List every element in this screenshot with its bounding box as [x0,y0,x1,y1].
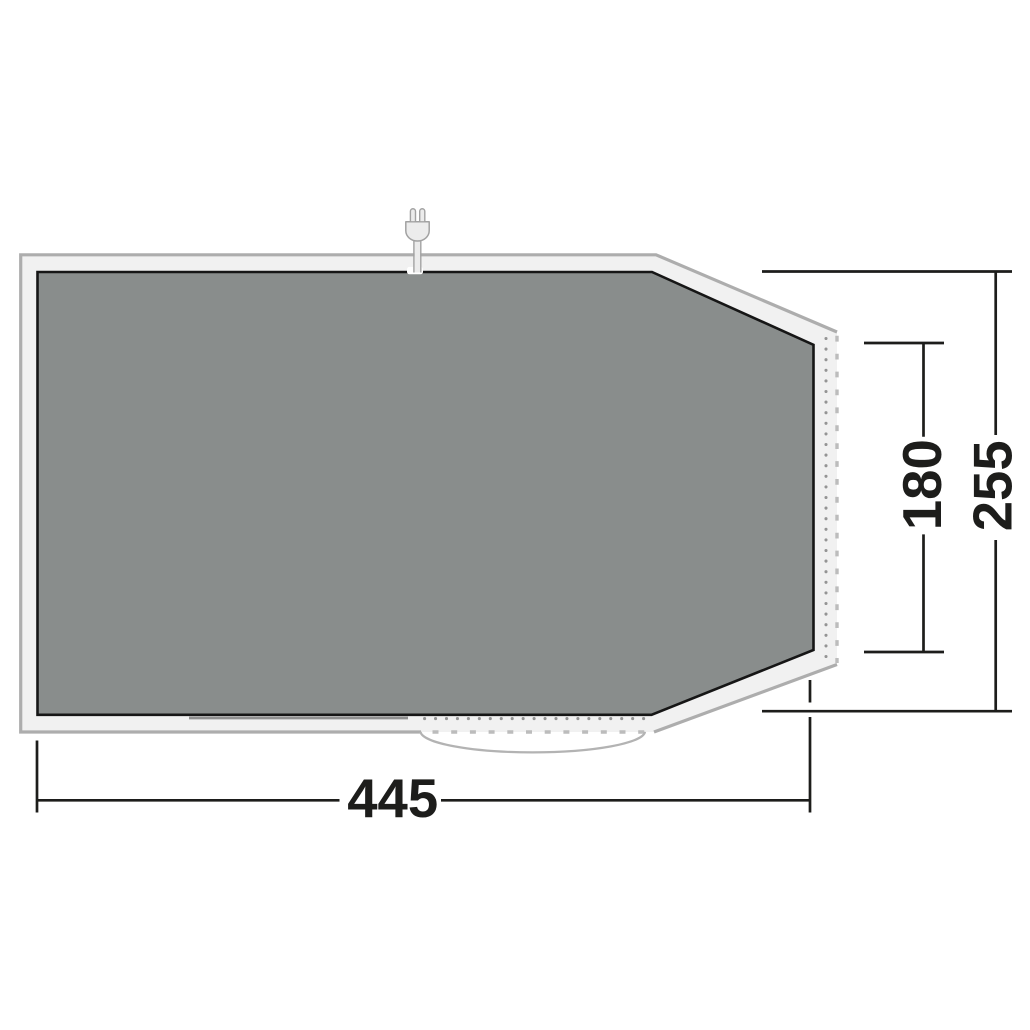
svg-text:445: 445 [347,768,438,829]
svg-text:180: 180 [892,439,953,530]
svg-text:255: 255 [962,440,1023,531]
